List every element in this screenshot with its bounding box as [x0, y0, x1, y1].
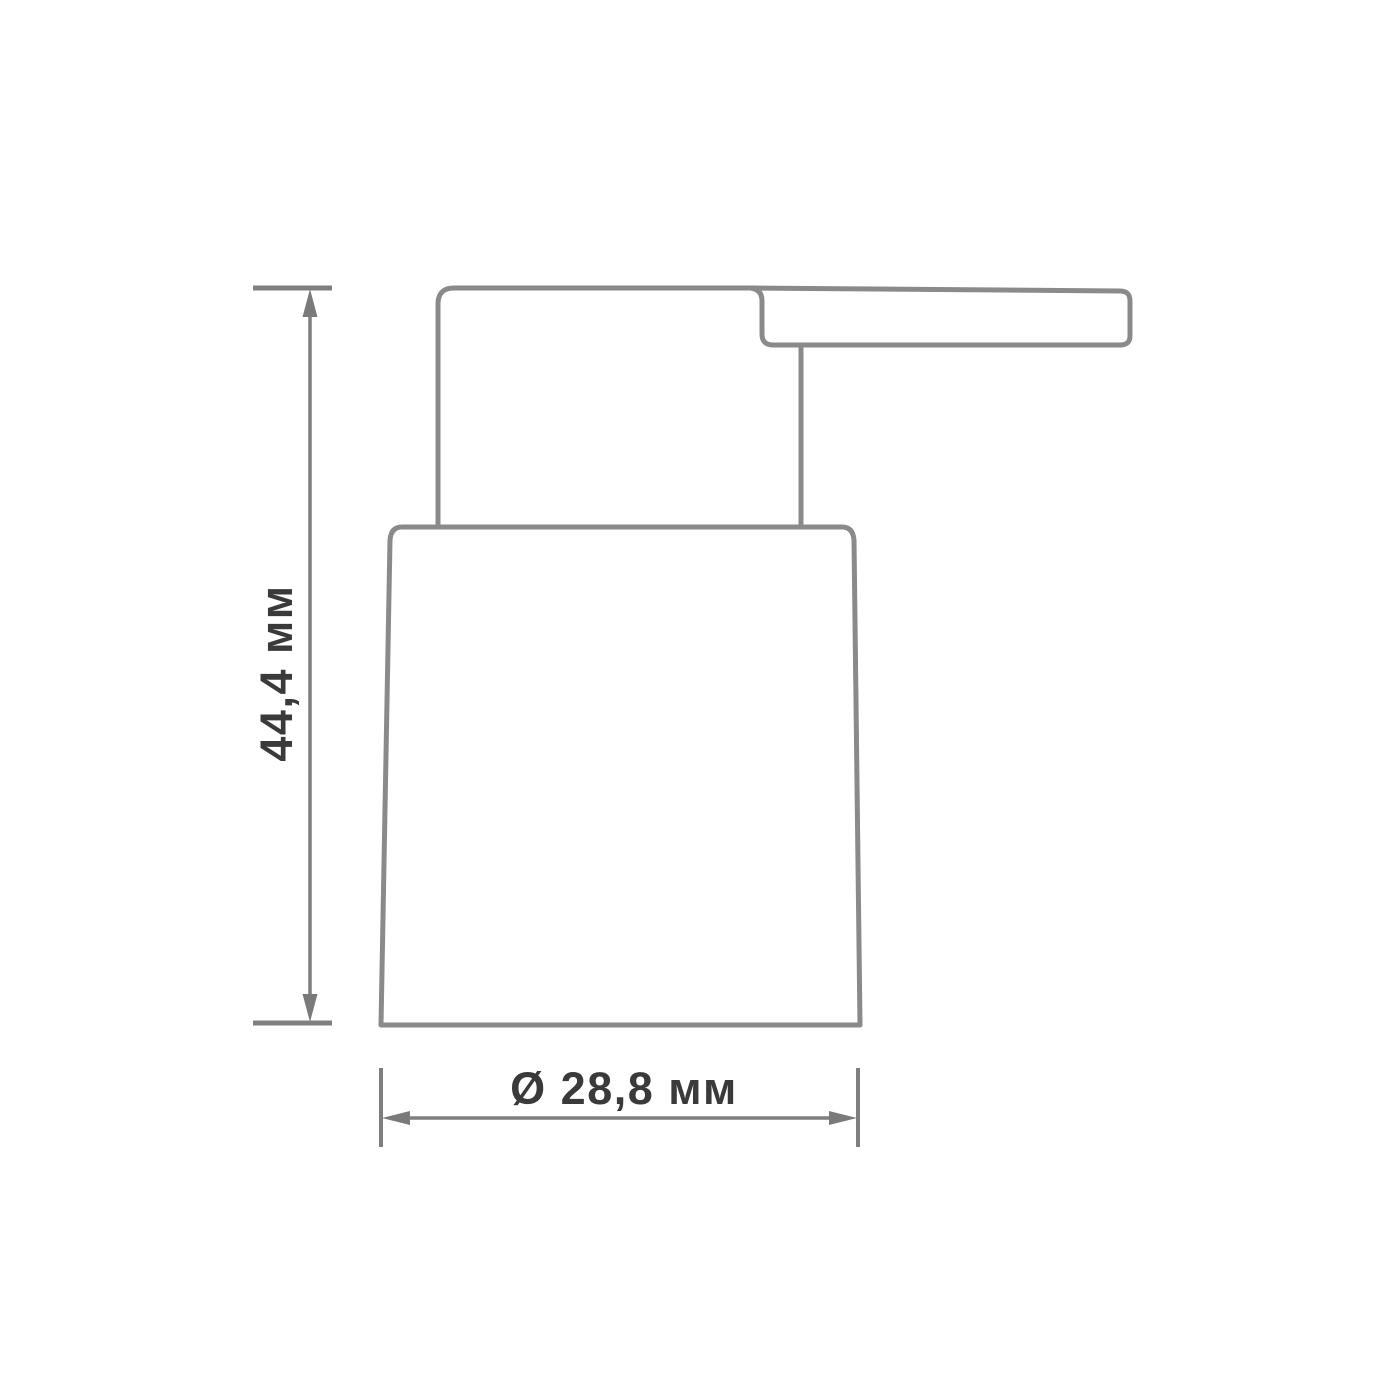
pump-outline-group [381, 288, 1130, 1025]
height-dim-arrow-down-icon [303, 994, 318, 1022]
technical-drawing-page: 44,4 мм Ø 28,8 мм [0, 0, 1380, 1380]
pump-body-outline [381, 527, 860, 1025]
dimension-lines-group [253, 288, 858, 1147]
pump-dimension-drawing: 44,4 мм Ø 28,8 мм [0, 0, 1380, 1380]
width-dim-arrow-left-icon [382, 1111, 410, 1125]
height-dim-arrow-up-icon [303, 289, 318, 317]
pump-spout-outline [750, 288, 1130, 345]
pump-neck-outline [438, 288, 756, 527]
width-dim-arrow-right-icon [829, 1111, 857, 1125]
height-dim-label: 44,4 мм [251, 584, 302, 761]
dimension-labels-group: 44,4 мм Ø 28,8 мм [251, 584, 738, 1114]
width-dim-label: Ø 28,8 мм [510, 1063, 738, 1114]
